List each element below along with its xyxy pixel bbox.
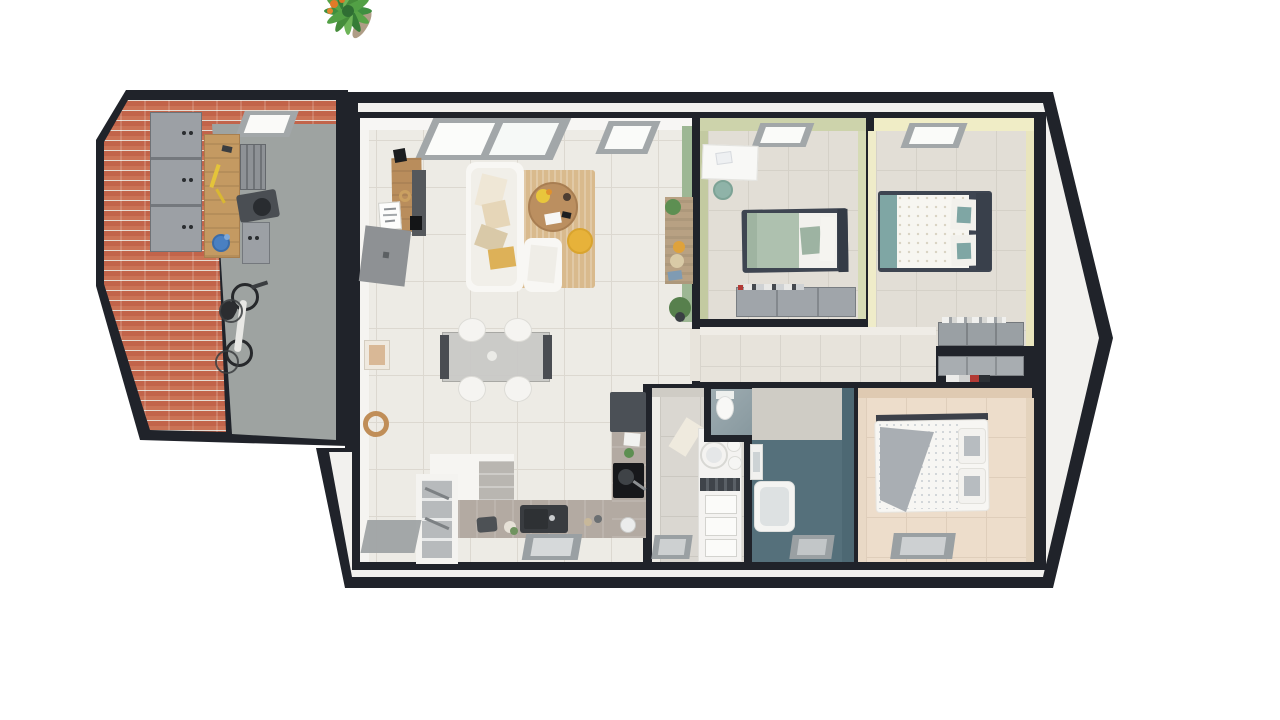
cabinet-lower-handle-2 [255, 236, 259, 240]
floorplan-render [0, 0, 1280, 720]
equipment-wheel [253, 198, 271, 216]
bathroom-mirror [753, 452, 760, 472]
counter-jar-1 [584, 518, 592, 526]
dining-table-rail-left [440, 335, 449, 379]
floor-plant-pot [675, 312, 685, 322]
yellow-pouf [567, 228, 593, 254]
garage-cabinets [150, 112, 202, 252]
cabinet-handle-2 [189, 131, 193, 135]
entrance-doormat [360, 520, 421, 553]
console-book [667, 270, 682, 281]
dining-table-rail-right [543, 335, 552, 379]
laundry-skylight-pane [658, 539, 686, 555]
kitchen-corner-front [479, 461, 514, 501]
bedroom3-pillow-1-accent [964, 436, 980, 456]
laundry-drawer-1 [705, 495, 737, 514]
kettle [620, 517, 636, 533]
bedroom2-closet-clothes [942, 317, 1006, 323]
palm-flower-2 [327, 8, 333, 14]
garage-skylight-pane [244, 115, 291, 133]
bedroom1-stool [713, 180, 733, 200]
bedroom1-dresser-items [744, 284, 804, 290]
counter-plate [623, 432, 640, 446]
counter-jar-2 [594, 515, 602, 523]
chaise-cushion [527, 245, 558, 284]
laundry-drawer-3 [705, 539, 737, 557]
bathroom-skylight-pane [797, 539, 827, 555]
photo-print [369, 345, 385, 365]
bedroom3-closet-units [938, 356, 1024, 376]
fruit-orange [546, 189, 552, 195]
closet-clothes-black [979, 375, 990, 382]
desk-black-box [410, 216, 422, 230]
bathtub-inner [760, 487, 789, 526]
bedroom1-wall-right [858, 131, 866, 319]
bedroom1-footboard [837, 209, 848, 272]
sofa-throw-gold [488, 246, 517, 269]
console-plant [665, 199, 681, 215]
kitchen-faucet [549, 515, 555, 521]
bike2-wheel-2 [215, 350, 239, 374]
laundry-bowl-2 [728, 456, 742, 470]
cabinet-handle-3 [182, 178, 186, 182]
cabinet-handle-5 [182, 225, 186, 229]
washer-drum-inner [706, 447, 722, 463]
garage-shelf-boxes [240, 144, 266, 190]
bedroom3-skylight-pane [900, 537, 947, 555]
table-tray [563, 193, 571, 201]
bathroom-upper-tile [752, 388, 854, 442]
hallway-north-face [700, 327, 936, 335]
bedroom2-pillow-1-accent [957, 207, 972, 224]
coffee-table [528, 182, 578, 232]
cabinet-handle-4 [189, 178, 193, 182]
bedroom3-east-face [1026, 398, 1034, 562]
bedroom1-dresser [736, 287, 856, 317]
bedroom2-closet-units [938, 322, 1024, 346]
bedroom1-skylight-pane [760, 127, 806, 143]
bike2-wheel-1 [219, 299, 243, 323]
counter-flowers-green [510, 527, 518, 535]
closet-clothes-white [946, 375, 959, 382]
fridge [610, 392, 646, 432]
bedroom3-pillow-2-accent [964, 476, 980, 496]
bedroom1-red-item [738, 285, 743, 290]
console-bowl [673, 241, 685, 253]
kitchen-sink-basin [524, 509, 548, 529]
living-floor-skylight-pane [530, 538, 573, 556]
toaster [476, 516, 497, 533]
watering-can-cap [224, 234, 230, 240]
toilet-bowl [716, 396, 734, 420]
laundry-baskets [700, 478, 740, 491]
bedroom2-pillow-2-accent [957, 243, 972, 259]
bathroom-east-wall [842, 388, 854, 562]
palm-core [342, 5, 354, 17]
garage-cabinet-lower [242, 222, 270, 264]
glass-glint [487, 351, 497, 361]
console-plate [670, 254, 684, 268]
tv-mark [383, 252, 390, 259]
bedroom2-headboard [976, 193, 991, 270]
bedroom1-pillow-white [819, 217, 836, 261]
bedroom2-teal-runner [880, 195, 897, 268]
bedroom1-duvet-fold [747, 213, 757, 268]
bedroom2-wall-left [868, 131, 876, 346]
bedroom1-desk-paper [715, 151, 733, 165]
closet-clothes-grey [959, 375, 970, 382]
hallway-floor [700, 327, 936, 382]
laundry-drawer-2 [705, 517, 737, 536]
cabinet-handle-1 [182, 131, 186, 135]
counter-herb-plant [624, 448, 634, 458]
bedroom3-north-face [858, 388, 1032, 398]
closet-clothes-red [970, 375, 979, 382]
bedroom2-wall-right [1026, 131, 1034, 346]
cabinet-lower-handle-1 [248, 236, 252, 240]
bedroom2-skylight-pane [909, 127, 959, 144]
desk-vinyl [399, 190, 411, 202]
palm-flower-1 [330, 0, 338, 8]
cooktop-pan [618, 469, 634, 485]
wall-mirror-round [363, 411, 389, 437]
cabinet-handle-6 [189, 225, 193, 229]
desk-speaker [393, 148, 407, 163]
bedroom3-west-face [858, 398, 866, 562]
